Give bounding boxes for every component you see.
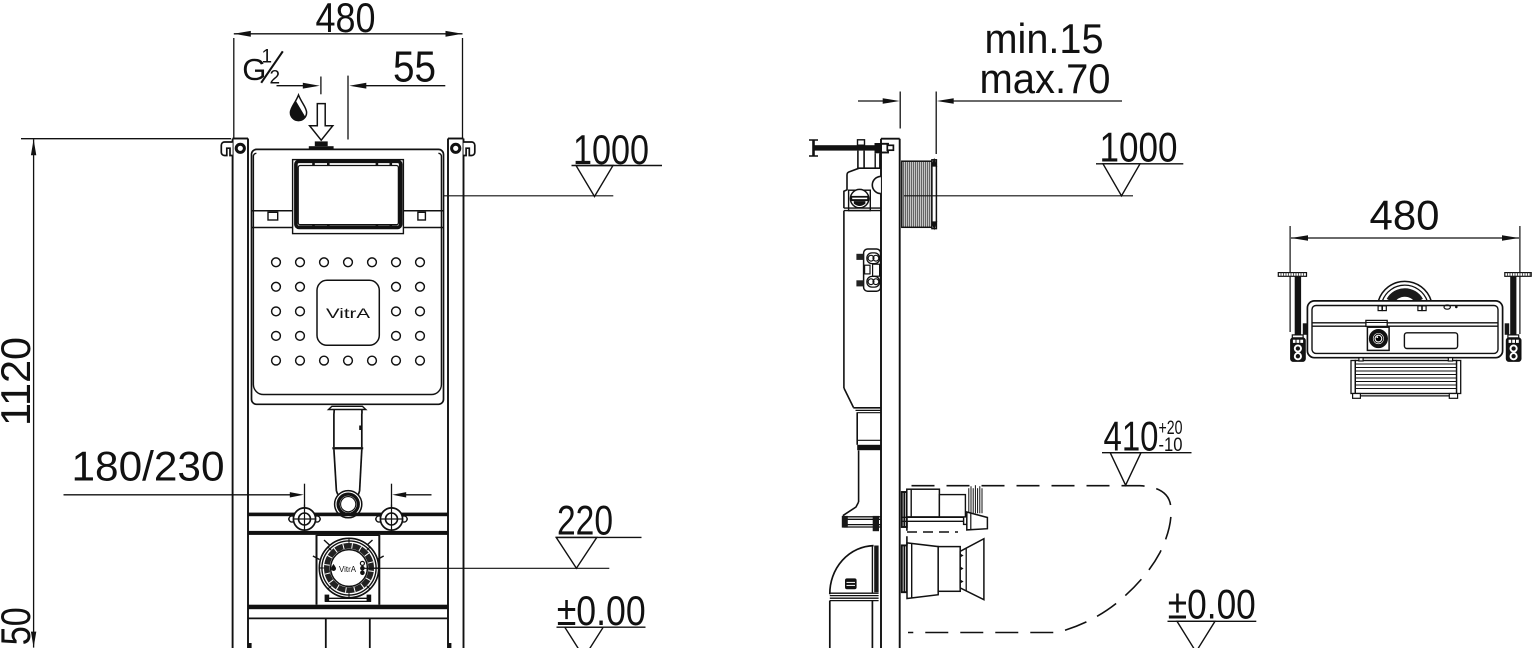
svg-text:50: 50 [0,607,39,645]
svg-text:max.70: max.70 [980,55,1111,102]
svg-text:480: 480 [1370,192,1440,239]
svg-text:55: 55 [393,43,436,92]
svg-text:±0.00: ±0.00 [1168,580,1256,627]
svg-text:VitrA: VitrA [326,305,371,321]
svg-text:480: 480 [316,0,376,41]
svg-text:220: 220 [557,497,613,544]
svg-text:1: 1 [262,46,273,67]
svg-text:1120: 1120 [0,337,39,426]
svg-text:VitrA: VitrA [339,564,356,574]
svg-text:180/230: 180/230 [72,443,225,490]
